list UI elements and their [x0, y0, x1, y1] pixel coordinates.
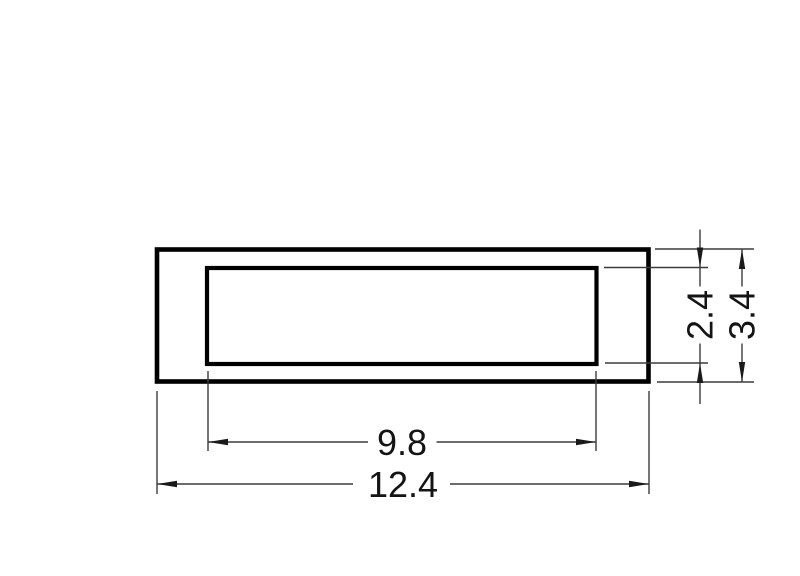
inner-rectangle [207, 268, 597, 364]
arrowhead-left-icon [157, 481, 177, 487]
arrowhead-right-icon [576, 439, 596, 445]
arrowhead-up-icon [739, 249, 745, 269]
profile-outline [157, 250, 649, 382]
dimension-drawing: 9.8 12.4 2.4 [0, 0, 800, 576]
dim-label-inner-height: 2.4 [680, 290, 721, 340]
arrowhead-up-icon [697, 363, 703, 383]
extension-lines [157, 249, 754, 494]
dimension-inner-height: 2.4 [680, 230, 721, 405]
arrowhead-right-icon [629, 481, 649, 487]
arrowhead-down-icon [697, 248, 703, 268]
arrowhead-left-icon [208, 439, 228, 445]
dimension-outer-width: 12.4 [157, 464, 649, 505]
dimension-inner-width: 9.8 [208, 422, 596, 463]
arrowhead-down-icon [739, 362, 745, 382]
dim-label-outer-width: 12.4 [368, 464, 438, 505]
dim-label-outer-height: 3.4 [722, 290, 763, 340]
dim-label-inner-width: 9.8 [377, 422, 427, 463]
dimension-outer-height: 3.4 [722, 249, 763, 382]
technical-drawing-canvas: 9.8 12.4 2.4 [0, 0, 800, 576]
